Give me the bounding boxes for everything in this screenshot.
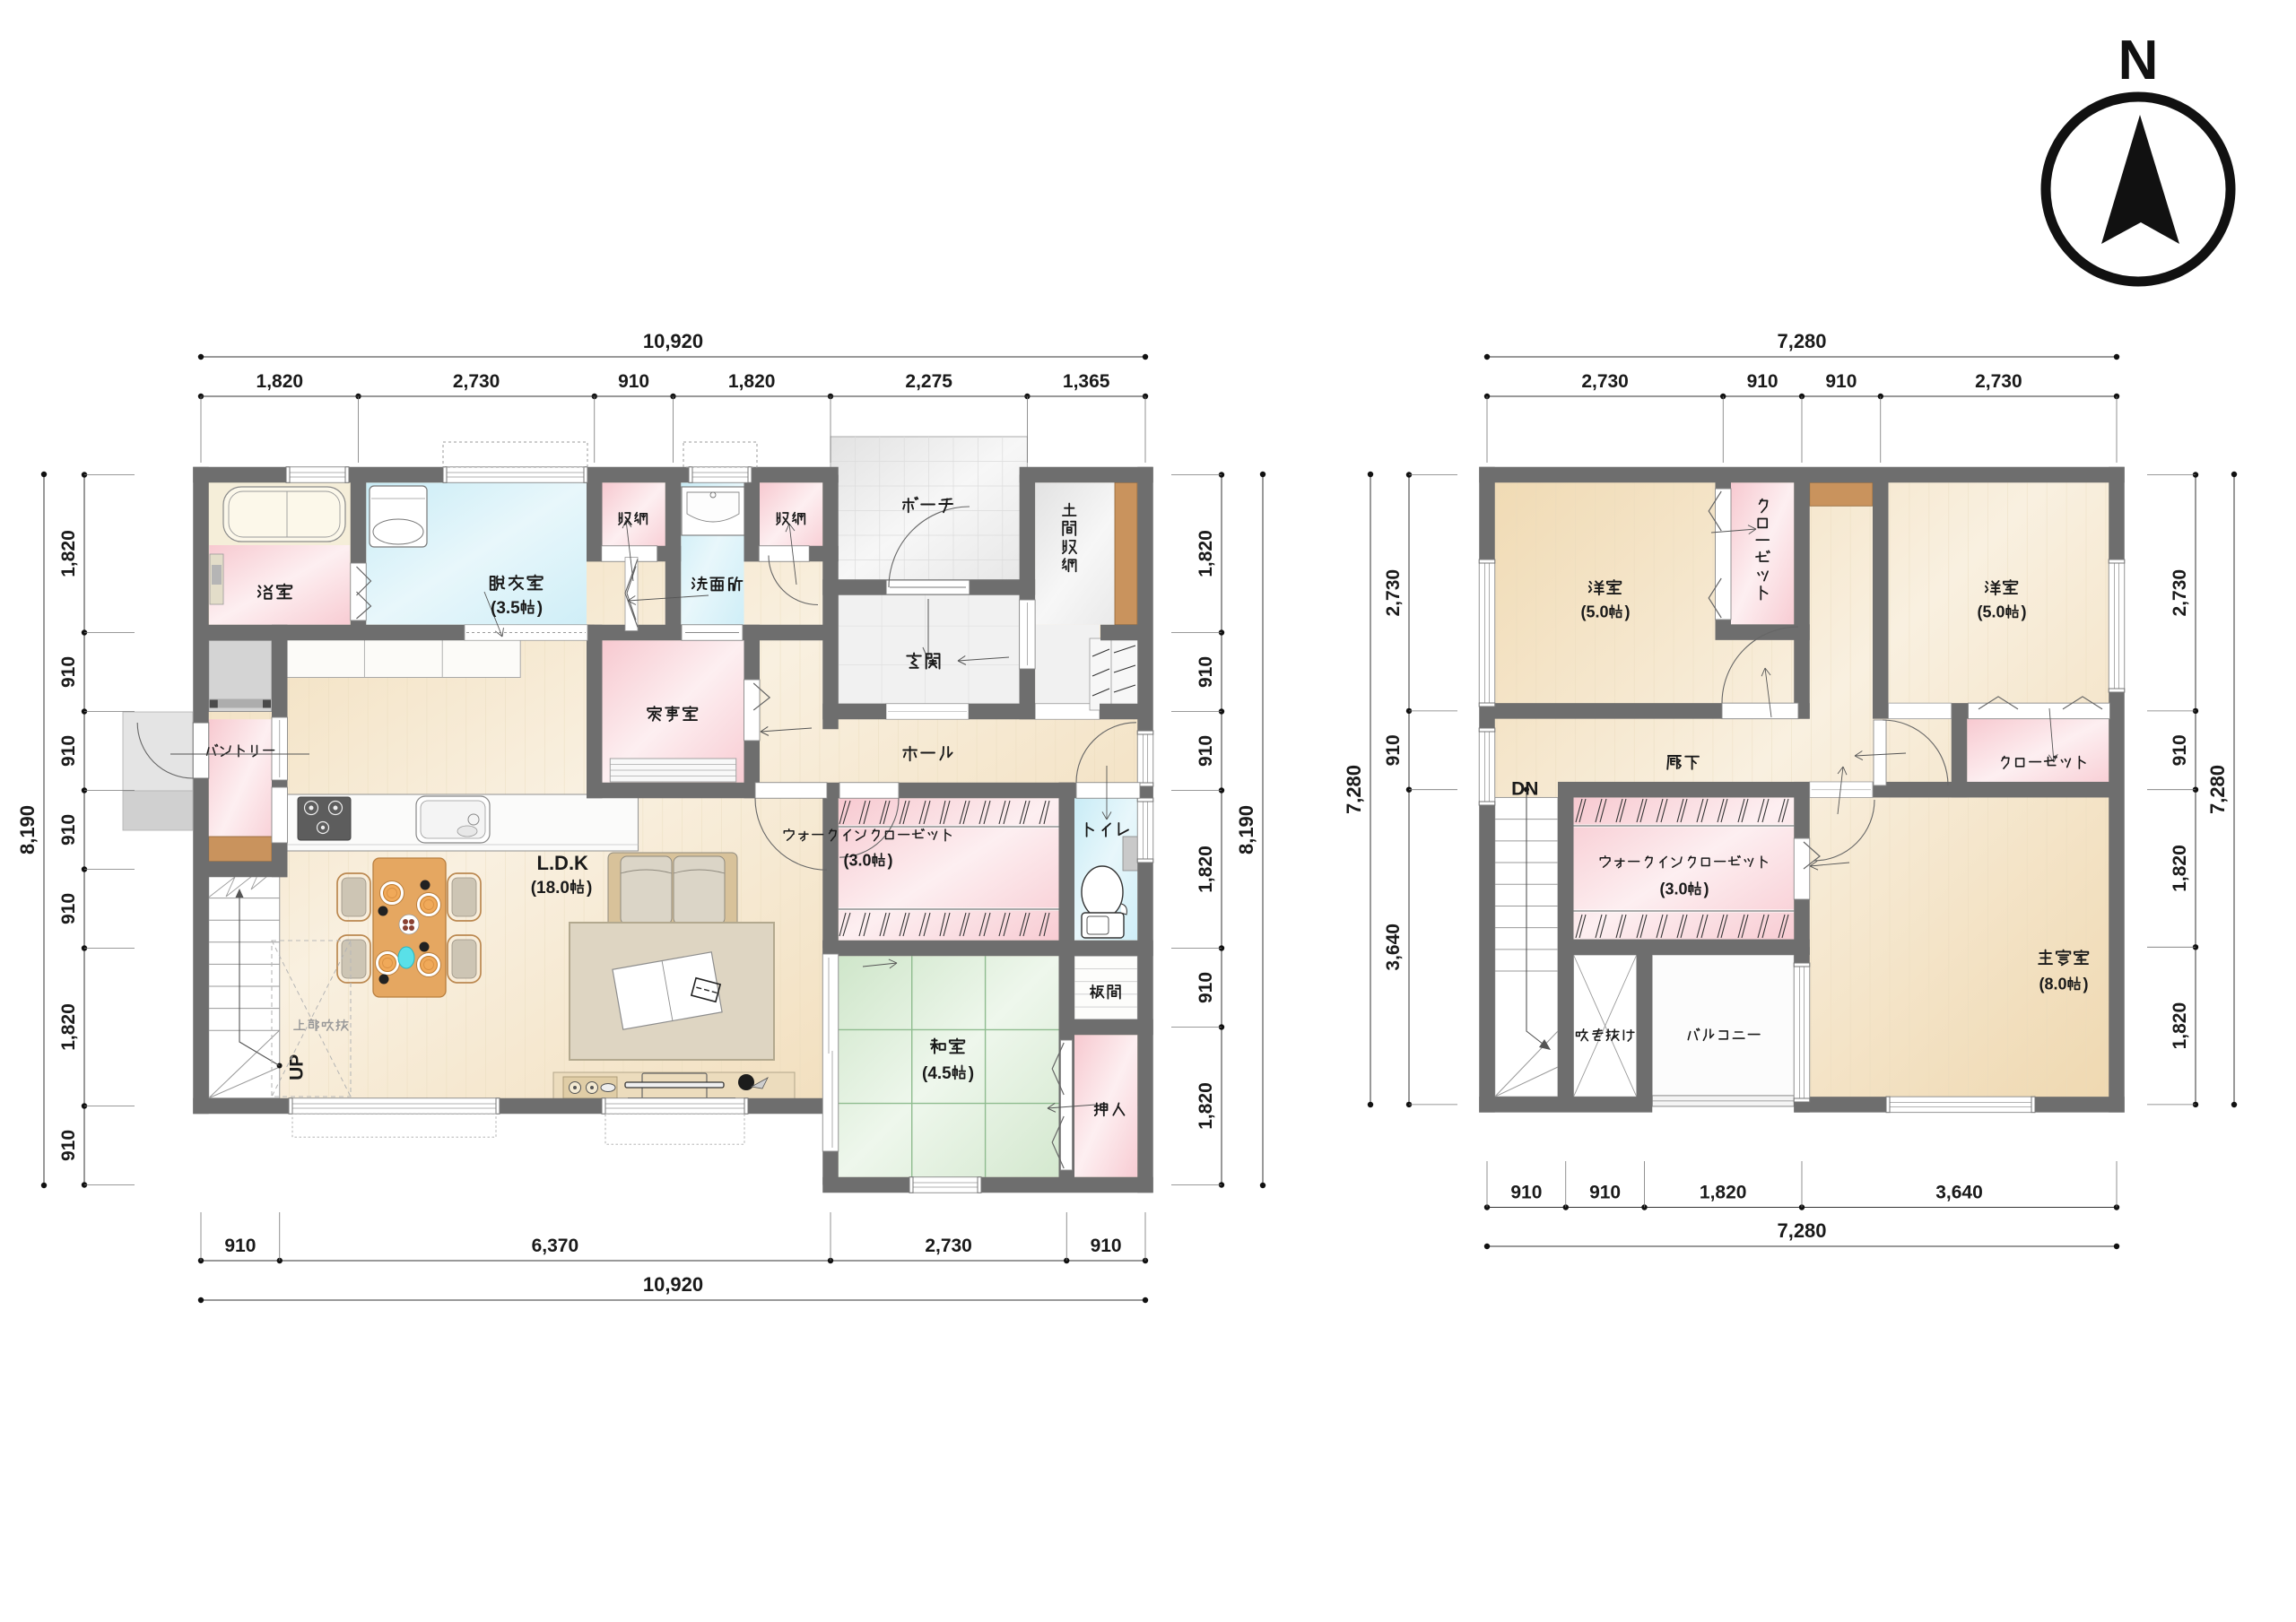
svg-text:910: 910	[1091, 1236, 1122, 1256]
svg-text:910: 910	[1589, 1183, 1621, 1203]
svg-text:910: 910	[58, 735, 79, 767]
svg-text:): )	[2022, 603, 2027, 621]
svg-text:1,820: 1,820	[1700, 1183, 1747, 1203]
svg-text:): )	[969, 1064, 974, 1083]
svg-text:(5.0: (5.0	[1581, 603, 1609, 621]
svg-text:): )	[2083, 976, 2089, 993]
svg-text:10,920: 10,920	[643, 330, 703, 352]
svg-text:(3.5: (3.5	[491, 599, 520, 618]
svg-text:1,820: 1,820	[1196, 530, 1216, 577]
svg-text:7,280: 7,280	[1777, 330, 1826, 352]
svg-text:1,820: 1,820	[1196, 846, 1216, 893]
svg-text:910: 910	[58, 656, 79, 688]
svg-text:6,370: 6,370	[532, 1236, 579, 1256]
svg-text:): )	[1704, 880, 1709, 898]
svg-text:2,730: 2,730	[453, 371, 500, 392]
svg-text:1,820: 1,820	[2170, 845, 2190, 892]
svg-text:2,275: 2,275	[905, 371, 952, 392]
svg-text:): )	[537, 599, 543, 618]
svg-text:1,820: 1,820	[1196, 1082, 1216, 1130]
svg-text:910: 910	[1196, 972, 1216, 1003]
svg-text:910: 910	[1383, 734, 1404, 766]
svg-text:910: 910	[1510, 1183, 1542, 1203]
svg-text:(3.0: (3.0	[1660, 880, 1688, 898]
svg-text:10,920: 10,920	[643, 1273, 703, 1296]
svg-text:(5.0: (5.0	[1978, 603, 2005, 621]
svg-text:UP: UP	[287, 1054, 308, 1080]
svg-text:7,280: 7,280	[1343, 765, 1365, 814]
svg-text:910: 910	[58, 893, 79, 924]
svg-text:): )	[587, 879, 592, 898]
svg-text:910: 910	[618, 371, 649, 392]
svg-text:(18.0: (18.0	[531, 879, 570, 898]
svg-text:): )	[888, 852, 893, 870]
svg-text:8,190: 8,190	[16, 805, 39, 854]
svg-text:3,640: 3,640	[1383, 924, 1404, 971]
svg-text:(4.5: (4.5	[922, 1064, 952, 1083]
svg-text:1,820: 1,820	[2170, 1002, 2190, 1050]
svg-text:(3.0: (3.0	[844, 852, 872, 870]
svg-text:1,820: 1,820	[58, 1003, 79, 1051]
svg-text:8,190: 8,190	[1235, 805, 1257, 854]
svg-text:): )	[1625, 603, 1631, 621]
svg-text:910: 910	[58, 814, 79, 846]
svg-text:2,730: 2,730	[1975, 371, 2022, 392]
svg-text:N: N	[2118, 30, 2159, 91]
svg-text:910: 910	[1196, 656, 1216, 688]
svg-text:3,640: 3,640	[1935, 1183, 1983, 1203]
svg-text:7,280: 7,280	[1777, 1219, 1826, 1242]
svg-text:1,820: 1,820	[257, 371, 304, 392]
svg-text:910: 910	[1825, 371, 1857, 392]
svg-text:DN: DN	[1511, 779, 1538, 800]
svg-text:2,730: 2,730	[2170, 569, 2190, 617]
svg-text:910: 910	[2170, 734, 2190, 766]
svg-text:910: 910	[224, 1236, 256, 1256]
svg-text:1,365: 1,365	[1063, 371, 1110, 392]
svg-text:2,730: 2,730	[1383, 569, 1404, 617]
svg-text:L.D.K: L.D.K	[537, 852, 589, 874]
svg-text:910: 910	[58, 1130, 79, 1161]
svg-text:(8.0: (8.0	[2039, 976, 2067, 993]
svg-text:1,820: 1,820	[728, 371, 776, 392]
svg-text:1,820: 1,820	[58, 530, 79, 577]
svg-text:910: 910	[1747, 371, 1779, 392]
svg-text:2,730: 2,730	[1581, 371, 1629, 392]
svg-text:910: 910	[1196, 735, 1216, 767]
svg-text:2,730: 2,730	[925, 1236, 972, 1256]
svg-text:7,280: 7,280	[2206, 765, 2229, 814]
